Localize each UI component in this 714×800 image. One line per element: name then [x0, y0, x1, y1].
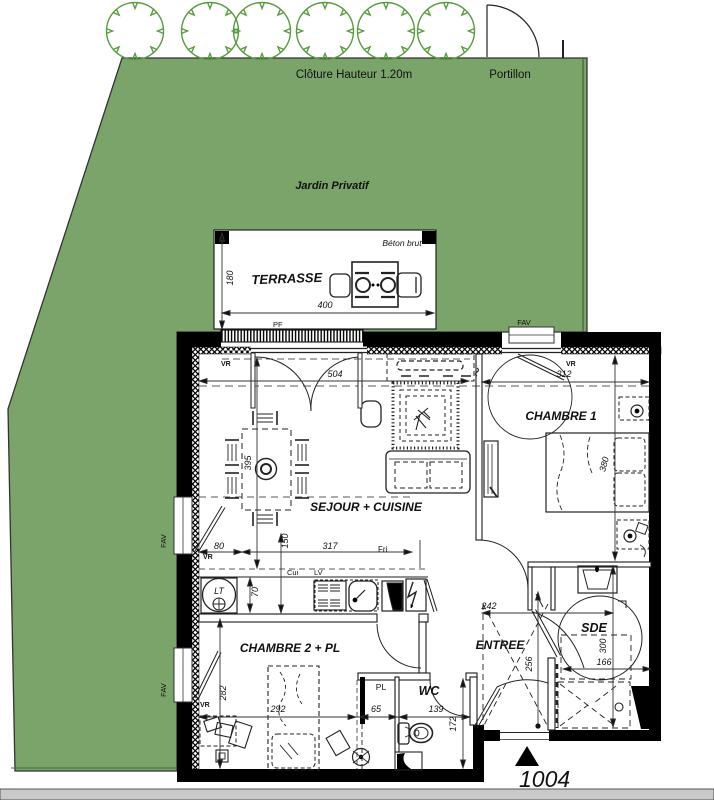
- svg-text:166: 166: [596, 657, 611, 667]
- svg-text:VR: VR: [200, 702, 210, 709]
- svg-text:180: 180: [225, 270, 235, 285]
- svg-text:VR: VR: [566, 361, 576, 368]
- svg-text:Jardin Privatif: Jardin Privatif: [295, 180, 370, 192]
- svg-text:139: 139: [428, 704, 443, 714]
- svg-text:1004: 1004: [519, 766, 570, 792]
- svg-text:FAV: FAV: [517, 318, 531, 327]
- svg-text:VR: VR: [221, 361, 231, 368]
- svg-text:504: 504: [327, 369, 342, 379]
- svg-text:WC: WC: [419, 684, 441, 698]
- svg-text:256: 256: [524, 656, 534, 672]
- svg-text:LT: LT: [214, 586, 225, 596]
- svg-text:Portillon: Portillon: [489, 69, 531, 81]
- svg-text:150: 150: [280, 533, 290, 548]
- svg-text:ENTREE: ENTREE: [476, 638, 526, 652]
- svg-text:CHAMBRE 1: CHAMBRE 1: [525, 409, 597, 423]
- svg-text:LV: LV: [314, 568, 323, 577]
- svg-text:SEJOUR + CUISINE: SEJOUR + CUISINE: [310, 500, 423, 514]
- svg-text:317: 317: [322, 541, 338, 551]
- svg-text:282: 282: [218, 685, 228, 701]
- svg-text:VR: VR: [203, 554, 213, 561]
- svg-text:242: 242: [480, 601, 496, 611]
- svg-text:400: 400: [317, 300, 332, 310]
- svg-text:80: 80: [214, 541, 224, 551]
- svg-text:292: 292: [269, 704, 285, 714]
- svg-text:172: 172: [448, 716, 458, 731]
- svg-text:312: 312: [556, 369, 571, 379]
- svg-text:Clôture Hauteur 1.20m: Clôture Hauteur 1.20m: [296, 69, 412, 81]
- svg-text:Béton brut: Béton brut: [382, 238, 422, 248]
- svg-text:Fri: Fri: [378, 545, 388, 554]
- svg-text:FAV: FAV: [159, 683, 168, 697]
- svg-text:65: 65: [371, 704, 382, 714]
- svg-text:SDE: SDE: [581, 621, 607, 635]
- svg-text:395: 395: [243, 455, 253, 471]
- svg-text:TERRASSE: TERRASSE: [251, 270, 323, 287]
- svg-text:Cui: Cui: [287, 568, 299, 577]
- svg-text:300: 300: [598, 638, 608, 653]
- svg-text:70: 70: [250, 587, 260, 597]
- svg-text:FAV: FAV: [159, 534, 168, 548]
- svg-text:PL: PL: [376, 682, 387, 692]
- svg-text:PF: PF: [273, 320, 283, 329]
- svg-text:CHAMBRE 2 + PL: CHAMBRE 2 + PL: [240, 641, 340, 655]
